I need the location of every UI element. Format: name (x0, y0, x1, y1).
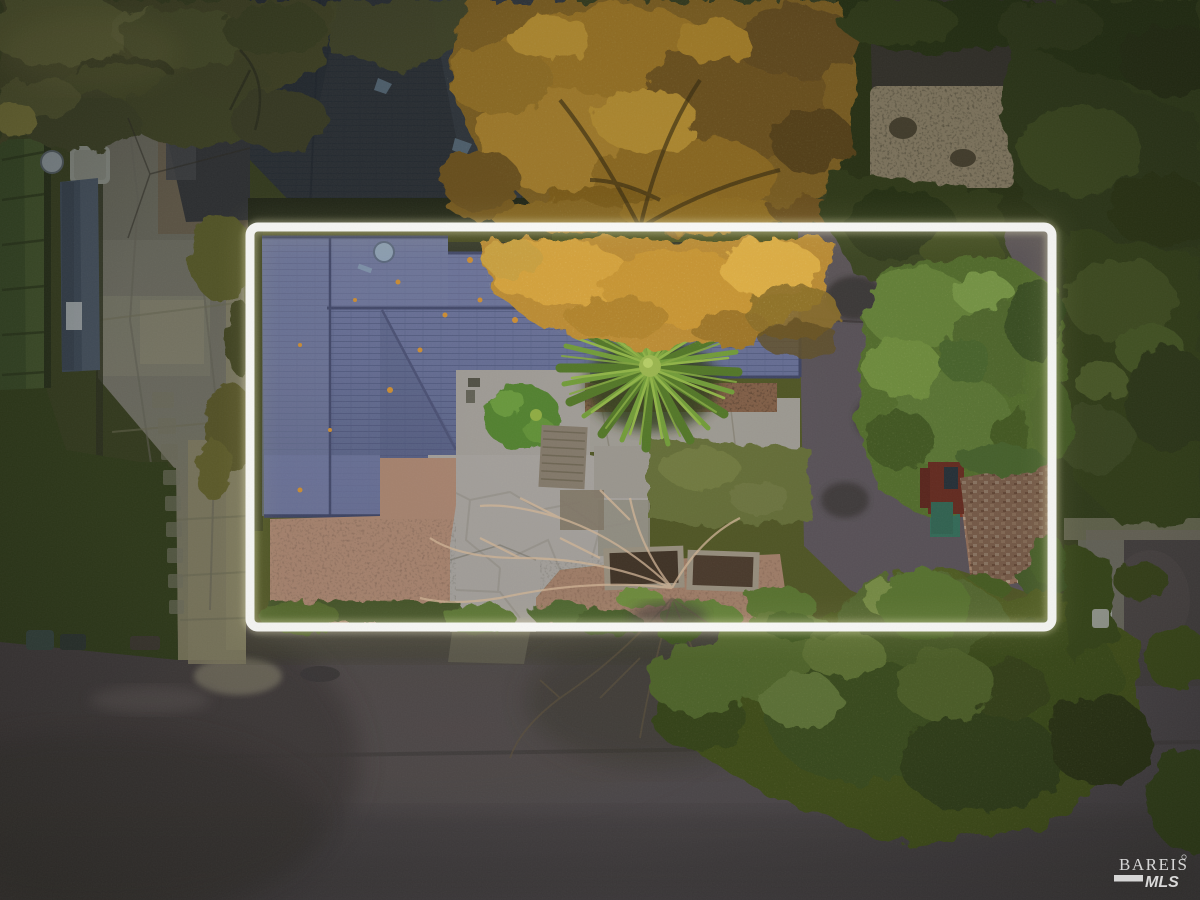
svg-text:BAREIS: BAREIS (1119, 855, 1188, 874)
svg-text:MLS: MLS (1145, 874, 1179, 891)
